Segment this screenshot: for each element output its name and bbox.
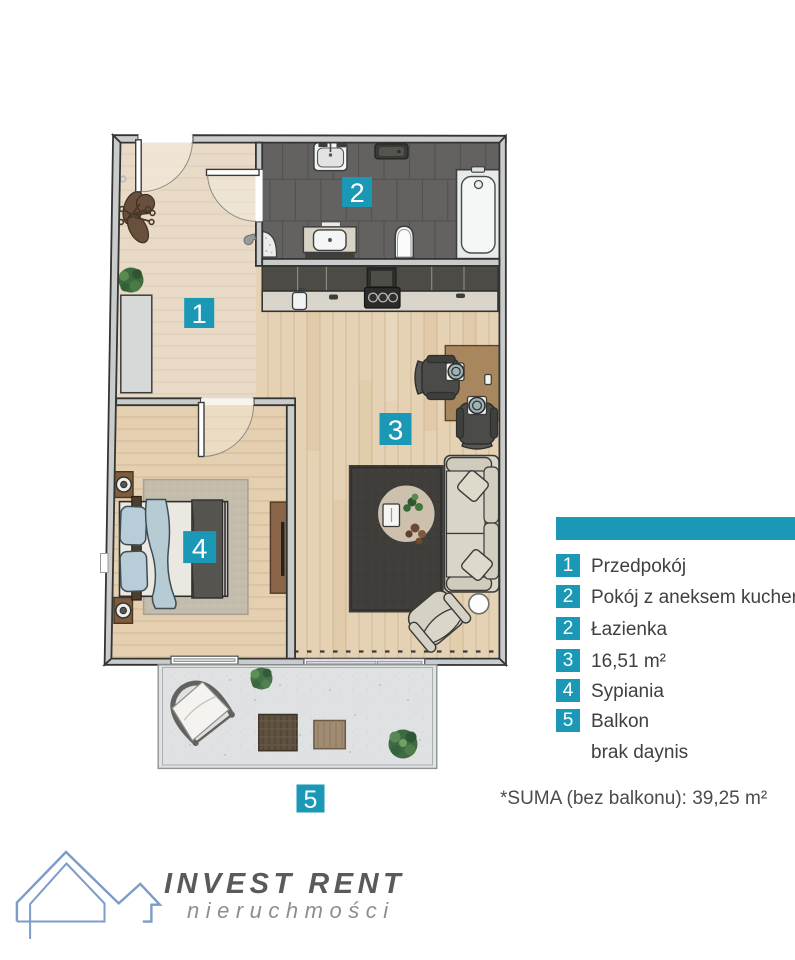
svg-text:4: 4	[192, 533, 208, 564]
svg-text:3: 3	[388, 415, 404, 446]
svg-text:5: 5	[304, 786, 318, 814]
svg-text:2: 2	[350, 178, 365, 208]
svg-text:1: 1	[192, 299, 207, 329]
